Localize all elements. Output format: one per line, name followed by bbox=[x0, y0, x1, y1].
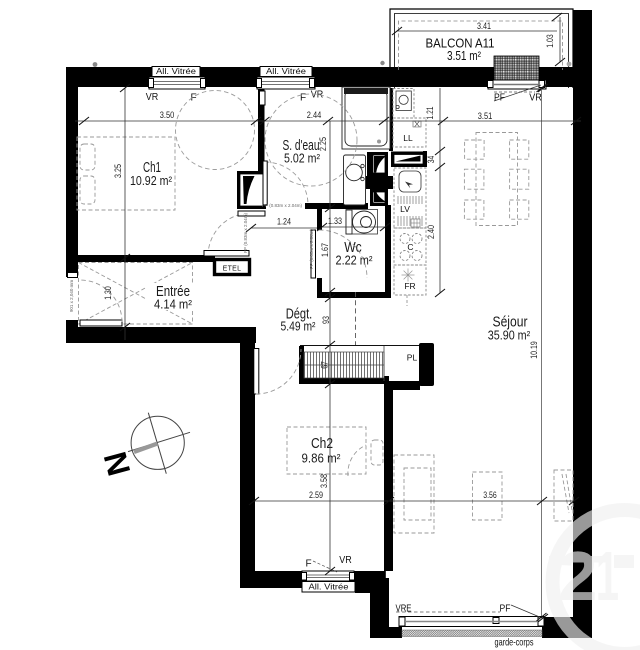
svg-text:93: 93 bbox=[321, 316, 332, 324]
svg-text:1.67: 1.67 bbox=[320, 243, 331, 257]
svg-text:All. Vitrée: All. Vitrée bbox=[266, 66, 306, 76]
svg-text:All. Vitrée: All. Vitrée bbox=[309, 582, 349, 592]
svg-text:2.22 m²: 2.22 m² bbox=[336, 254, 373, 268]
svg-text:3.51 m²: 3.51 m² bbox=[447, 49, 481, 63]
svg-text:2: 2 bbox=[559, 537, 598, 615]
svg-text:VR: VR bbox=[529, 93, 542, 104]
svg-text:2.44: 2.44 bbox=[307, 110, 322, 121]
svg-text:3.51: 3.51 bbox=[478, 111, 493, 122]
svg-text:34: 34 bbox=[426, 156, 437, 164]
svg-text:3.58: 3.58 bbox=[319, 474, 330, 488]
svg-text:10.92 m²: 10.92 m² bbox=[130, 174, 172, 188]
svg-text:3.41: 3.41 bbox=[477, 21, 491, 32]
svg-text:garde-corps: garde-corps bbox=[495, 637, 534, 649]
svg-text:1.24: 1.24 bbox=[277, 217, 291, 228]
svg-text:1.33: 1.33 bbox=[328, 216, 342, 227]
svg-text:VR: VR bbox=[146, 92, 159, 103]
svg-text:ETEL: ETEL bbox=[223, 266, 242, 273]
svg-text:4.14 m²: 4.14 m² bbox=[154, 298, 192, 312]
svg-text:3.25: 3.25 bbox=[113, 164, 124, 178]
svg-text:LL: LL bbox=[403, 133, 413, 143]
svg-text:3.56: 3.56 bbox=[483, 490, 497, 501]
svg-text:1: 1 bbox=[596, 538, 619, 616]
svg-text:2.59: 2.59 bbox=[309, 490, 323, 501]
svg-text:1.03: 1.03 bbox=[545, 34, 556, 48]
svg-text:1.21: 1.21 bbox=[425, 107, 436, 120]
svg-text:10.19: 10.19 bbox=[529, 341, 540, 359]
svg-text:F: F bbox=[305, 559, 311, 570]
svg-text:PP (0.83m x 2.04m): PP (0.83m x 2.04m) bbox=[262, 203, 302, 208]
svg-text:9.86 m²: 9.86 m² bbox=[302, 452, 341, 466]
svg-text:FR: FR bbox=[404, 281, 415, 291]
svg-text:PP (0.83m x 2.04m): PP (0.83m x 2.04m) bbox=[243, 213, 248, 253]
svg-text:VR: VR bbox=[339, 555, 352, 566]
svg-text:35.90 m²: 35.90 m² bbox=[488, 329, 531, 343]
svg-text:901 x 2,040 mm: 901 x 2,040 mm bbox=[69, 280, 74, 313]
svg-text:PP (0.83m x 2.04m): PP (0.83m x 2.04m) bbox=[309, 229, 314, 269]
svg-text:67: 67 bbox=[320, 361, 331, 369]
svg-text:2.25: 2.25 bbox=[318, 137, 329, 151]
svg-text:PF: PF bbox=[500, 604, 511, 615]
svg-text:5.49 m²: 5.49 m² bbox=[281, 320, 316, 334]
svg-text:5.02 m²: 5.02 m² bbox=[284, 152, 320, 166]
svg-text:LV: LV bbox=[400, 204, 410, 214]
svg-text:VRE: VRE bbox=[396, 604, 412, 615]
svg-text:3.50: 3.50 bbox=[160, 110, 175, 121]
svg-text:2.40: 2.40 bbox=[426, 225, 437, 239]
svg-text:C: C bbox=[407, 242, 413, 252]
svg-text:All. Vitrée: All. Vitrée bbox=[156, 66, 196, 76]
svg-text:PL: PL bbox=[407, 353, 418, 363]
svg-text:PF: PF bbox=[494, 93, 505, 104]
svg-text:1.30: 1.30 bbox=[103, 286, 114, 300]
